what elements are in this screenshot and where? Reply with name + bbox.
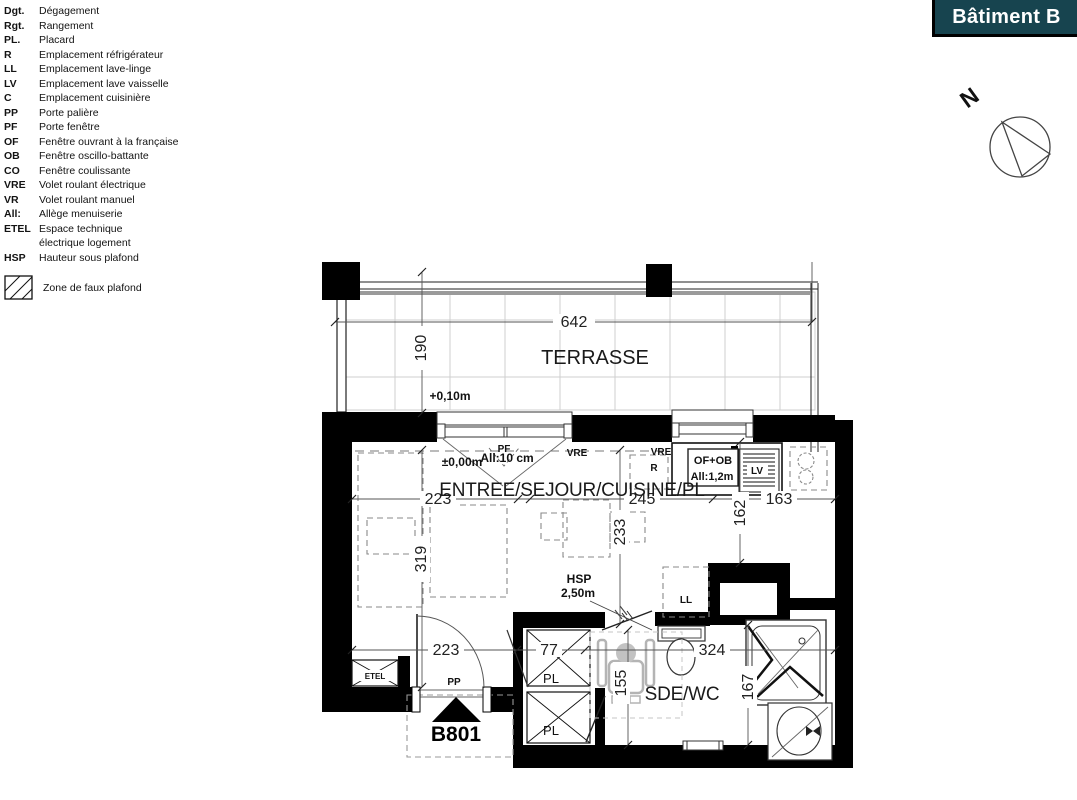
floor-plan: 642 190 223 245 163 319 233 162 223 77 3… — [0, 0, 1077, 800]
kitchen-window — [672, 410, 753, 437]
hsp-abbr: HSP — [567, 572, 592, 586]
duct-shaft-inner — [720, 583, 777, 615]
room-label-terrasse: TERRASSE — [541, 347, 649, 369]
dim-living-mid-depth: 233 — [612, 519, 629, 546]
north-label: N — [955, 82, 984, 113]
kitchen-window-allege-label: All:1,2m — [691, 471, 734, 483]
washbasin — [768, 703, 832, 760]
room-label-living: ENTREE/SEJOUR/CUISINE/PL — [439, 480, 704, 501]
dishwasher-label: LV — [751, 466, 763, 477]
dim-bathroom-left-depth: 155 — [613, 670, 630, 697]
hsp-value: 2,50m — [561, 586, 595, 600]
closet-bottom-label: PL — [543, 723, 559, 738]
dim-closet-width: 77 — [540, 642, 558, 659]
washer-label: LL — [680, 595, 692, 606]
dim-terrace-depth: 190 — [413, 335, 430, 362]
dim-living-depth: 319 — [413, 546, 430, 573]
kitchen-window-type-label: OF+OB — [694, 455, 732, 467]
dim-bathroom-right-depth: 167 — [740, 674, 757, 701]
closet-top-label: PL — [543, 671, 559, 686]
pp-label: PP — [447, 677, 461, 688]
dim-kitchen-width: 163 — [766, 491, 793, 508]
level-terrace: +0,10m — [429, 389, 470, 403]
entry-arrow-icon — [432, 697, 481, 722]
dim-terrace-width: 642 — [561, 314, 588, 331]
vre-kitchen-label: VRE — [651, 447, 672, 458]
pf-label: PF — [498, 444, 511, 455]
fridge-label: R — [650, 463, 658, 474]
shower — [746, 620, 826, 705]
level-living: ±0,00m — [442, 455, 483, 469]
dim-entry-width: 223 — [433, 642, 460, 659]
dim-kitchen-depth: 162 — [732, 500, 749, 527]
etel-label: ETEL — [365, 672, 386, 681]
vre-living-label: VRE — [567, 448, 588, 459]
dim-bathroom-width: 324 — [699, 642, 726, 659]
towel-rail — [683, 741, 723, 750]
room-label-sde-wc: SDE/WC — [645, 684, 720, 705]
north-arrow: N — [955, 82, 1050, 177]
unit-entry: B801 — [431, 697, 482, 746]
unit-number: B801 — [431, 723, 482, 746]
